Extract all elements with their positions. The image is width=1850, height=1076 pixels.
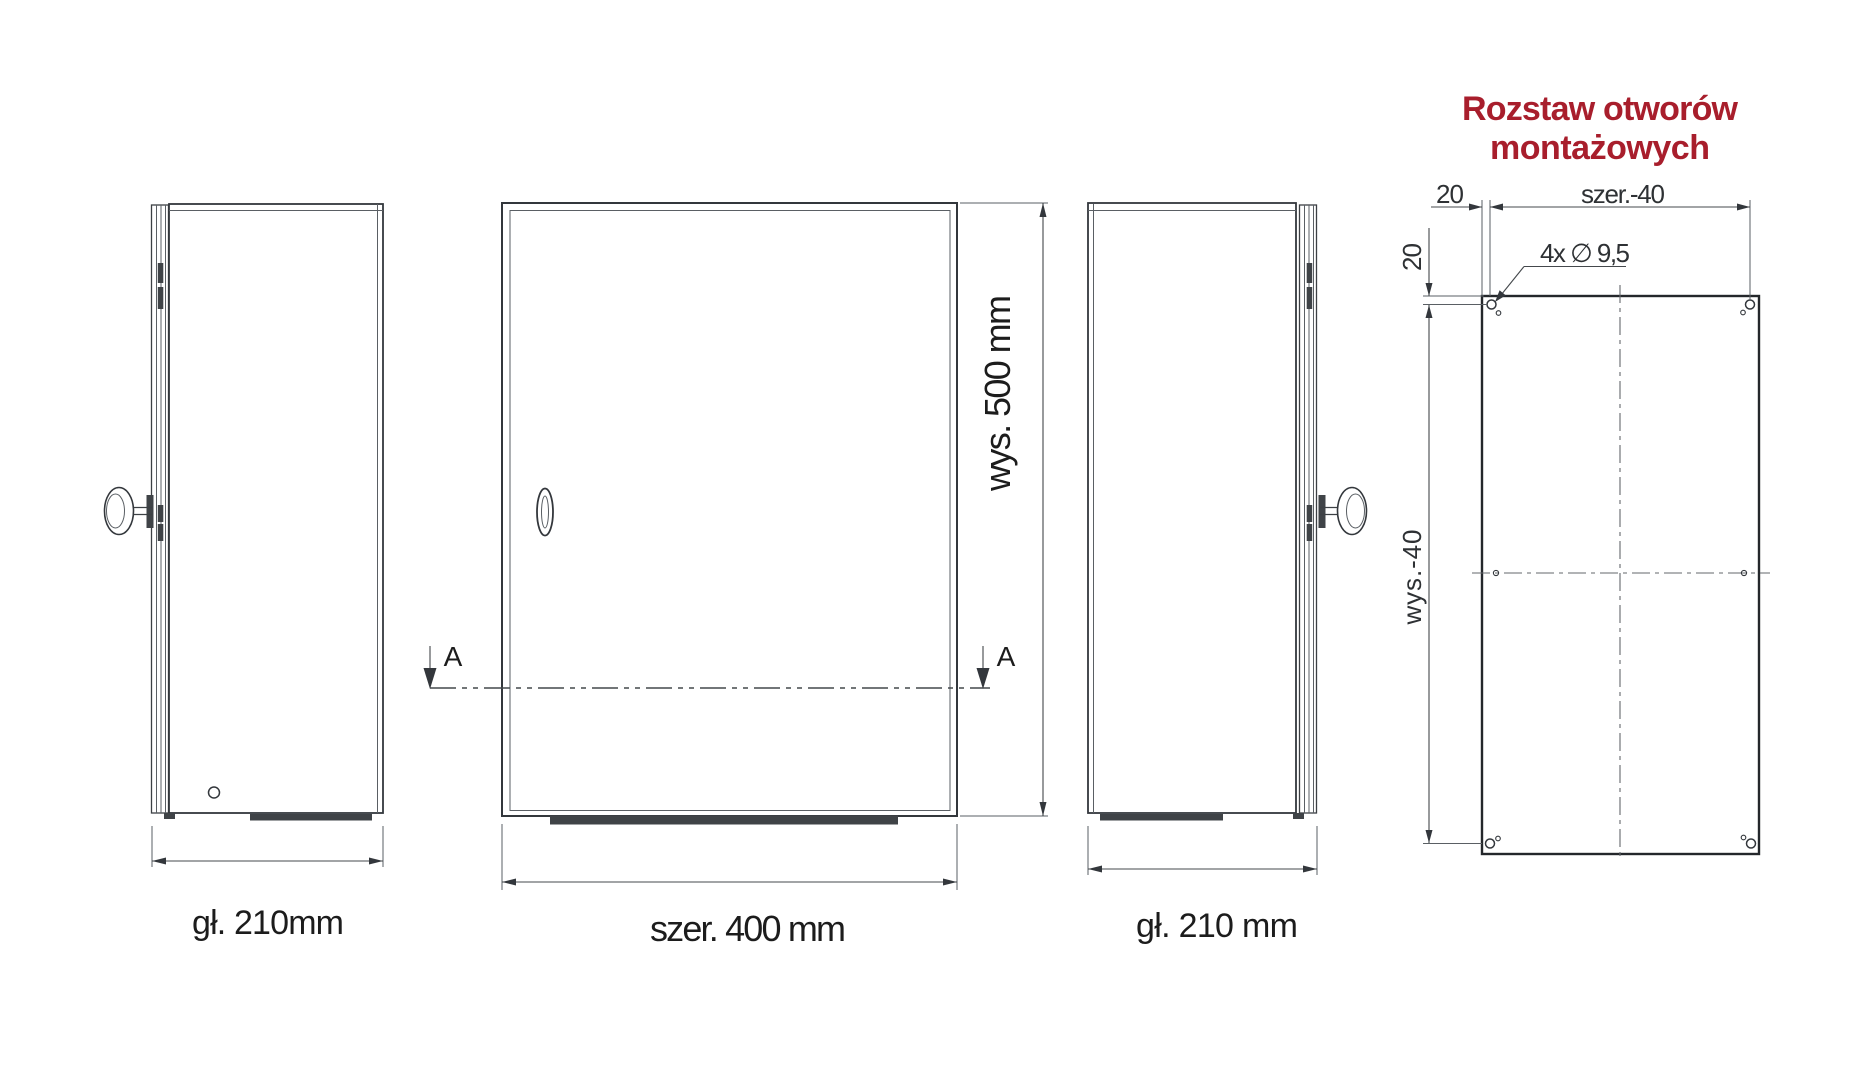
offset-top-label: 20 (1436, 179, 1464, 209)
offset-side-label: 20 (1397, 243, 1427, 271)
enclosure-drawing-canvas: gł. 210mm A A szer. 400 (0, 0, 1850, 1076)
right-depth-label: gł. 210 mm (1136, 907, 1298, 945)
handle-mount (147, 495, 154, 528)
left-view-base-strip (250, 814, 372, 821)
front-width-label: szer. 400 mm (650, 908, 846, 949)
diagram-title-line2: montażowych (1490, 129, 1710, 167)
front-height-label: wys. 500 mm (977, 295, 1018, 492)
diagram-title-line1: Rozstaw otworów (1462, 90, 1739, 128)
left-view-body (169, 204, 383, 813)
holes-callout: 4x ∅ 9,5 (1495, 238, 1630, 302)
right-side-view: gł. 210 mm (1088, 203, 1367, 945)
holes-note-label: 4x ∅ 9,5 (1540, 238, 1630, 268)
left-view-depth-dimension: gł. 210mm (152, 826, 383, 942)
left-depth-label: gł. 210mm (192, 904, 344, 942)
knob-icon (105, 488, 134, 535)
right-view-depth-dimension: gł. 210 mm (1088, 826, 1317, 945)
front-view-handle (537, 489, 553, 536)
section-label-left: A (444, 641, 463, 672)
left-view-handle (105, 488, 154, 535)
left-side-view: gł. 210mm (105, 204, 384, 942)
front-view: A A szer. 400 mm wys. 500 mm (424, 203, 1049, 949)
front-view-base-strip (550, 816, 898, 825)
mounting-holes-diagram: Rozstaw otworów montażowych (1397, 90, 1770, 860)
right-view-handle (1319, 488, 1367, 535)
right-view-base-strip (1100, 814, 1223, 821)
right-view-body (1088, 203, 1296, 813)
handle-mount (1319, 495, 1326, 528)
front-view-body (502, 203, 957, 816)
mount-height-label: wys.-40 (1397, 530, 1427, 626)
section-label-right: A (997, 641, 1016, 672)
technical-drawing-page: gł. 210mm A A szer. 400 (0, 0, 1850, 1076)
mount-width-label: szer.-40 (1581, 179, 1665, 209)
knob-icon (1338, 488, 1367, 535)
front-width-dimension: szer. 400 mm (502, 824, 957, 949)
side-dimensions: 20 wys.-40 (1397, 228, 1487, 844)
front-height-dimension: wys. 500 mm (960, 203, 1048, 816)
